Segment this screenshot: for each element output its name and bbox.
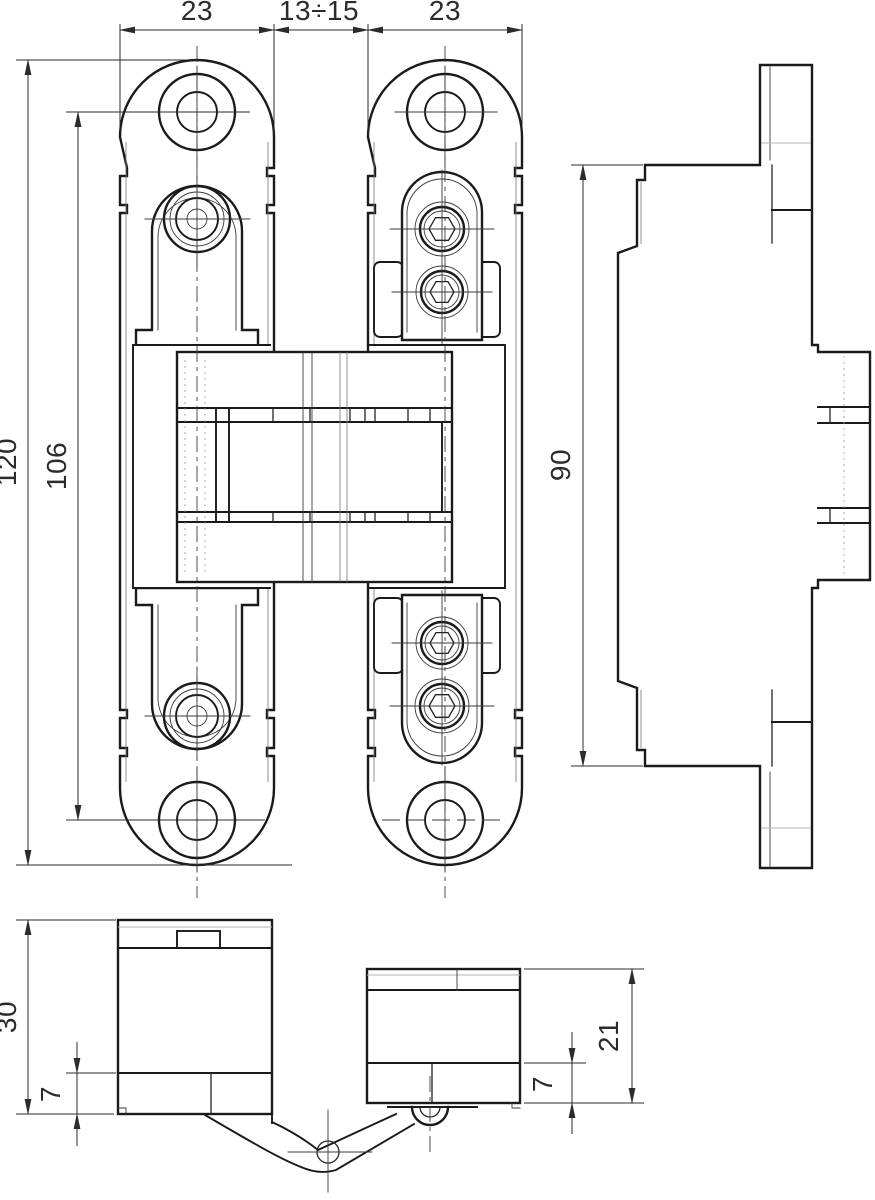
dim-plan-left: 30 7 [0,920,116,1146]
dim-body-height: 90 [545,449,576,481]
dim-plan-right: 21 7 [524,969,644,1134]
dim-gap: 13÷15 [279,0,359,26]
plan-left-body [118,920,272,1114]
dim-plate-width-right: 23 [429,0,461,26]
dim-total-height: 120 [0,438,22,486]
hinge-link-mechanism [133,345,505,588]
dim-left-body-lip: 7 [35,1086,66,1102]
side-profile [618,65,870,868]
dim-left-body-depth: 30 [0,1001,22,1033]
dim-right-body-depth: 21 [593,1020,624,1052]
dim-right-body-lip: 7 [527,1076,558,1092]
plan-right-body [367,969,520,1108]
plan-view: 30 7 21 7 [0,920,644,1192]
front-view: 23 13÷15 23 120 106 [0,0,522,898]
hinge-technical-drawing: 23 13÷15 23 120 106 [0,0,875,1200]
dim-plate-width-left: 23 [181,0,213,26]
technical-drawing-page: 23 13÷15 23 120 106 [0,0,875,1200]
dim-hole-spacing: 106 [41,442,72,490]
side-view: 90 [545,65,870,868]
